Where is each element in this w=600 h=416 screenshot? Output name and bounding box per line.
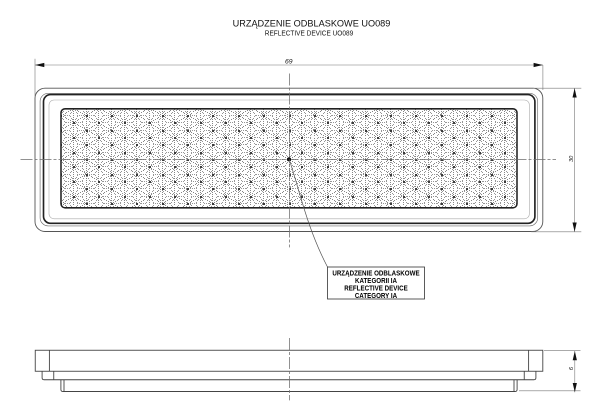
svg-text:30: 30 — [569, 155, 575, 162]
svg-text:REFLECTIVE DEVICE: REFLECTIVE DEVICE — [344, 285, 408, 293]
svg-text:6: 6 — [569, 366, 575, 370]
svg-text:URZĄDZENIE ODBLASKOWE UO089: URZĄDZENIE ODBLASKOWE UO089 — [233, 18, 391, 28]
svg-text:CATEGORY IA: CATEGORY IA — [355, 293, 397, 301]
svg-text:69: 69 — [285, 59, 293, 66]
svg-text:URZĄDZENIE ODBLASKOWE: URZĄDZENIE ODBLASKOWE — [332, 270, 420, 278]
svg-text:REFLECTIVE DEVICE UO089: REFLECTIVE DEVICE UO089 — [265, 30, 354, 37]
svg-text:KATEGORII IA: KATEGORII IA — [355, 278, 397, 286]
